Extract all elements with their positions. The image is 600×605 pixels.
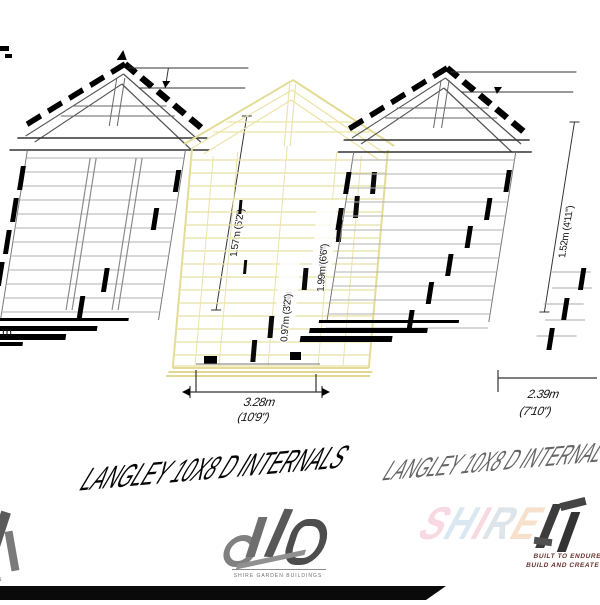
tagline-line-2: BUILD AND CREATE (525, 561, 600, 570)
down-arrow-icon (493, 87, 502, 94)
shire-watermark-right: SHIRE BUILT TO ENDURE BUILD AND CREATE (438, 498, 600, 590)
left-elevation-drawing: 1.57m (5'2") (0, 50, 272, 346)
right-elevation-drawing: 1.52m (4'11") (298, 68, 600, 350)
apex-arrow-icon (117, 50, 129, 60)
mid-width-imperial-label: (10'9") (235, 410, 271, 424)
logo-bar-shape (5, 531, 20, 572)
bottom-border-bar (0, 586, 446, 600)
logo-divider-line (232, 569, 326, 570)
mid-width-metric-label: 3.28m (242, 395, 278, 409)
corner-marks (0, 46, 12, 58)
roof-outline (20, 64, 217, 132)
down-arrow-icon (161, 81, 170, 88)
logo-small-text: SHIRE GARDEN BUILDINGS (222, 573, 334, 579)
width-dim-line (190, 370, 322, 398)
logo-dark-mark (559, 497, 586, 511)
wall-edges (327, 152, 516, 322)
product-image: 1.57m (5'2") 1.99m (6'6") 0.97m (3'2") 1… (0, 0, 600, 600)
base-steps (300, 320, 459, 342)
right-width-dimension: 2.39m (7'10") (498, 370, 597, 418)
shire-watermark-center: SHIRE GARDEN BUILDINGS (222, 505, 334, 585)
tagline-line-1: BUILT TO ENDURE (527, 552, 600, 561)
framing-bars (225, 172, 377, 362)
mid-width-dimension: 3.28m (10'9") (182, 352, 330, 424)
framing-bars (546, 268, 586, 350)
right-width-metric-label: 2.39m (526, 387, 562, 401)
gable-framing (384, 80, 504, 128)
brand-taglines: BUILT TO ENDURE BUILD AND CREATE (525, 552, 600, 570)
base-lines (166, 372, 372, 376)
left-arrow-icon (182, 388, 190, 396)
logo-small-text-fragment: ON (0, 577, 2, 583)
clipped-dimension-fragment: m (2, 325, 12, 339)
base-steps (0, 318, 129, 346)
watermark-left-fragment: ON (0, 505, 34, 587)
right-width-imperial-label: (7'10") (517, 404, 553, 418)
logo-dark-mark (557, 512, 581, 552)
right-arrow-icon (322, 388, 330, 396)
